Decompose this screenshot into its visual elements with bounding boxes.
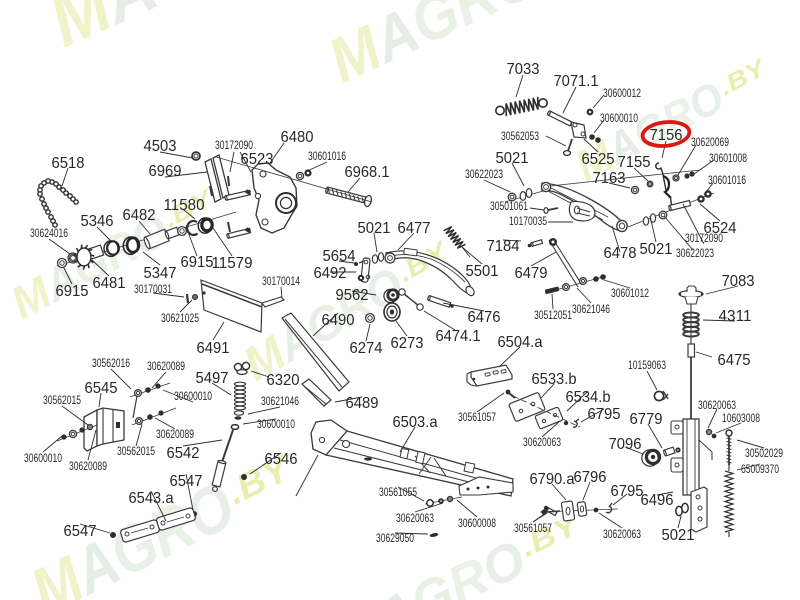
svg-text:30620069: 30620069 xyxy=(691,137,729,149)
svg-text:6915: 6915 xyxy=(56,283,89,300)
svg-text:30561057: 30561057 xyxy=(458,412,496,424)
svg-text:30601008: 30601008 xyxy=(709,153,747,165)
svg-text:7184: 7184 xyxy=(487,238,520,255)
svg-text:6492: 6492 xyxy=(314,265,347,282)
svg-text:4311: 4311 xyxy=(719,308,752,325)
svg-text:6478: 6478 xyxy=(604,245,637,262)
svg-text:6968.1: 6968.1 xyxy=(345,164,390,181)
svg-text:30621025: 30621025 xyxy=(161,313,199,325)
svg-text:6795: 6795 xyxy=(611,483,644,500)
svg-text:30562015: 30562015 xyxy=(117,446,155,458)
svg-text:6474.1: 6474.1 xyxy=(436,328,481,345)
svg-text:30562015: 30562015 xyxy=(43,395,81,407)
svg-text:30601016: 30601016 xyxy=(708,175,746,187)
svg-text:6523: 6523 xyxy=(241,151,274,168)
svg-text:30561057: 30561057 xyxy=(514,523,552,535)
svg-text:7071.1: 7071.1 xyxy=(554,73,599,90)
svg-text:6273: 6273 xyxy=(391,335,424,352)
svg-text:6477: 6477 xyxy=(398,220,431,237)
svg-text:7155: 7155 xyxy=(618,154,651,171)
svg-text:5021: 5021 xyxy=(358,220,391,237)
svg-text:6274: 6274 xyxy=(350,340,383,357)
svg-text:30501061: 30501061 xyxy=(490,201,528,213)
svg-text:11579: 11579 xyxy=(212,255,253,272)
svg-text:5347: 5347 xyxy=(144,265,177,282)
svg-text:6480: 6480 xyxy=(281,129,314,146)
svg-text:30600010: 30600010 xyxy=(600,113,638,125)
svg-text:6496: 6496 xyxy=(641,492,674,509)
svg-text:6482: 6482 xyxy=(123,207,156,224)
svg-text:10159063: 10159063 xyxy=(628,360,666,372)
svg-text:6545: 6545 xyxy=(85,380,118,397)
svg-text:30170031: 30170031 xyxy=(134,284,172,296)
svg-text:30502029: 30502029 xyxy=(745,448,783,460)
svg-text:6969: 6969 xyxy=(149,163,182,180)
svg-text:30172090: 30172090 xyxy=(215,140,253,152)
svg-text:11580: 11580 xyxy=(164,197,205,214)
svg-text:6525: 6525 xyxy=(582,151,615,168)
svg-text:9562: 9562 xyxy=(336,287,369,304)
svg-text:30620089: 30620089 xyxy=(147,361,185,373)
svg-text:4503: 4503 xyxy=(144,138,177,155)
svg-text:30172090: 30172090 xyxy=(685,233,723,245)
svg-text:6790.a: 6790.a xyxy=(530,471,575,488)
svg-text:7096: 7096 xyxy=(609,436,642,453)
svg-text:6481: 6481 xyxy=(93,275,126,292)
svg-text:30562053: 30562053 xyxy=(501,131,539,143)
svg-text:6518: 6518 xyxy=(52,155,85,172)
svg-text:30620089: 30620089 xyxy=(156,429,194,441)
svg-text:30170014: 30170014 xyxy=(262,276,300,288)
svg-text:6503.a: 6503.a xyxy=(393,414,438,431)
svg-text:30620063: 30620063 xyxy=(523,437,561,449)
svg-text:30621046: 30621046 xyxy=(572,304,610,316)
svg-text:30600010: 30600010 xyxy=(174,391,212,403)
svg-text:30622023: 30622023 xyxy=(465,169,503,181)
svg-text:5654: 5654 xyxy=(323,248,356,265)
svg-text:10170035: 10170035 xyxy=(509,216,547,228)
svg-text:6796: 6796 xyxy=(574,469,607,486)
svg-text:10603008: 10603008 xyxy=(722,413,760,425)
svg-text:30621046: 30621046 xyxy=(261,396,299,408)
svg-text:7163: 7163 xyxy=(593,170,626,187)
svg-text:6475: 6475 xyxy=(718,352,751,369)
svg-text:5346: 5346 xyxy=(81,213,114,230)
svg-text:65009370: 65009370 xyxy=(741,464,779,476)
svg-text:7033: 7033 xyxy=(507,61,540,78)
svg-text:30629050: 30629050 xyxy=(376,533,414,545)
svg-text:6479: 6479 xyxy=(515,265,548,282)
svg-text:5021: 5021 xyxy=(662,527,695,544)
svg-text:5021: 5021 xyxy=(496,150,529,167)
svg-text:6547: 6547 xyxy=(64,523,97,540)
svg-text:5021: 5021 xyxy=(640,241,673,258)
svg-text:30622023: 30622023 xyxy=(676,248,714,260)
svg-text:30601012: 30601012 xyxy=(611,288,649,300)
svg-text:30624016: 30624016 xyxy=(30,228,68,240)
svg-text:6491: 6491 xyxy=(197,340,230,357)
svg-text:30620089: 30620089 xyxy=(69,461,107,473)
svg-text:6547: 6547 xyxy=(170,473,203,490)
svg-text:30561055: 30561055 xyxy=(379,487,417,499)
svg-text:6504.a: 6504.a xyxy=(498,334,543,351)
svg-text:5497: 5497 xyxy=(196,370,229,387)
svg-text:30512051: 30512051 xyxy=(534,310,572,322)
svg-text:30600010: 30600010 xyxy=(24,453,62,465)
svg-text:6489: 6489 xyxy=(346,395,379,412)
svg-text:30600010: 30600010 xyxy=(257,419,295,431)
svg-text:30620063: 30620063 xyxy=(603,529,641,541)
svg-text:6534.b: 6534.b xyxy=(566,389,611,406)
svg-text:6795: 6795 xyxy=(588,406,621,423)
svg-text:6533.b: 6533.b xyxy=(532,371,577,388)
svg-text:6779: 6779 xyxy=(630,411,663,428)
svg-text:5501: 5501 xyxy=(466,263,499,280)
svg-text:6476: 6476 xyxy=(468,309,501,326)
svg-text:7083: 7083 xyxy=(722,273,755,290)
svg-text:30620063: 30620063 xyxy=(396,513,434,525)
svg-text:30562016: 30562016 xyxy=(92,358,130,370)
svg-text:30600012: 30600012 xyxy=(603,88,641,100)
svg-text:6542: 6542 xyxy=(167,445,200,462)
svg-text:6490: 6490 xyxy=(322,312,355,329)
svg-text:30600008: 30600008 xyxy=(458,518,496,530)
svg-text:30601016: 30601016 xyxy=(308,151,346,163)
svg-text:6546: 6546 xyxy=(265,451,298,468)
svg-text:6915: 6915 xyxy=(181,254,214,271)
svg-text:30620063: 30620063 xyxy=(698,400,736,412)
svg-text:6320: 6320 xyxy=(267,372,300,389)
svg-text:6543.a: 6543.a xyxy=(129,490,174,507)
